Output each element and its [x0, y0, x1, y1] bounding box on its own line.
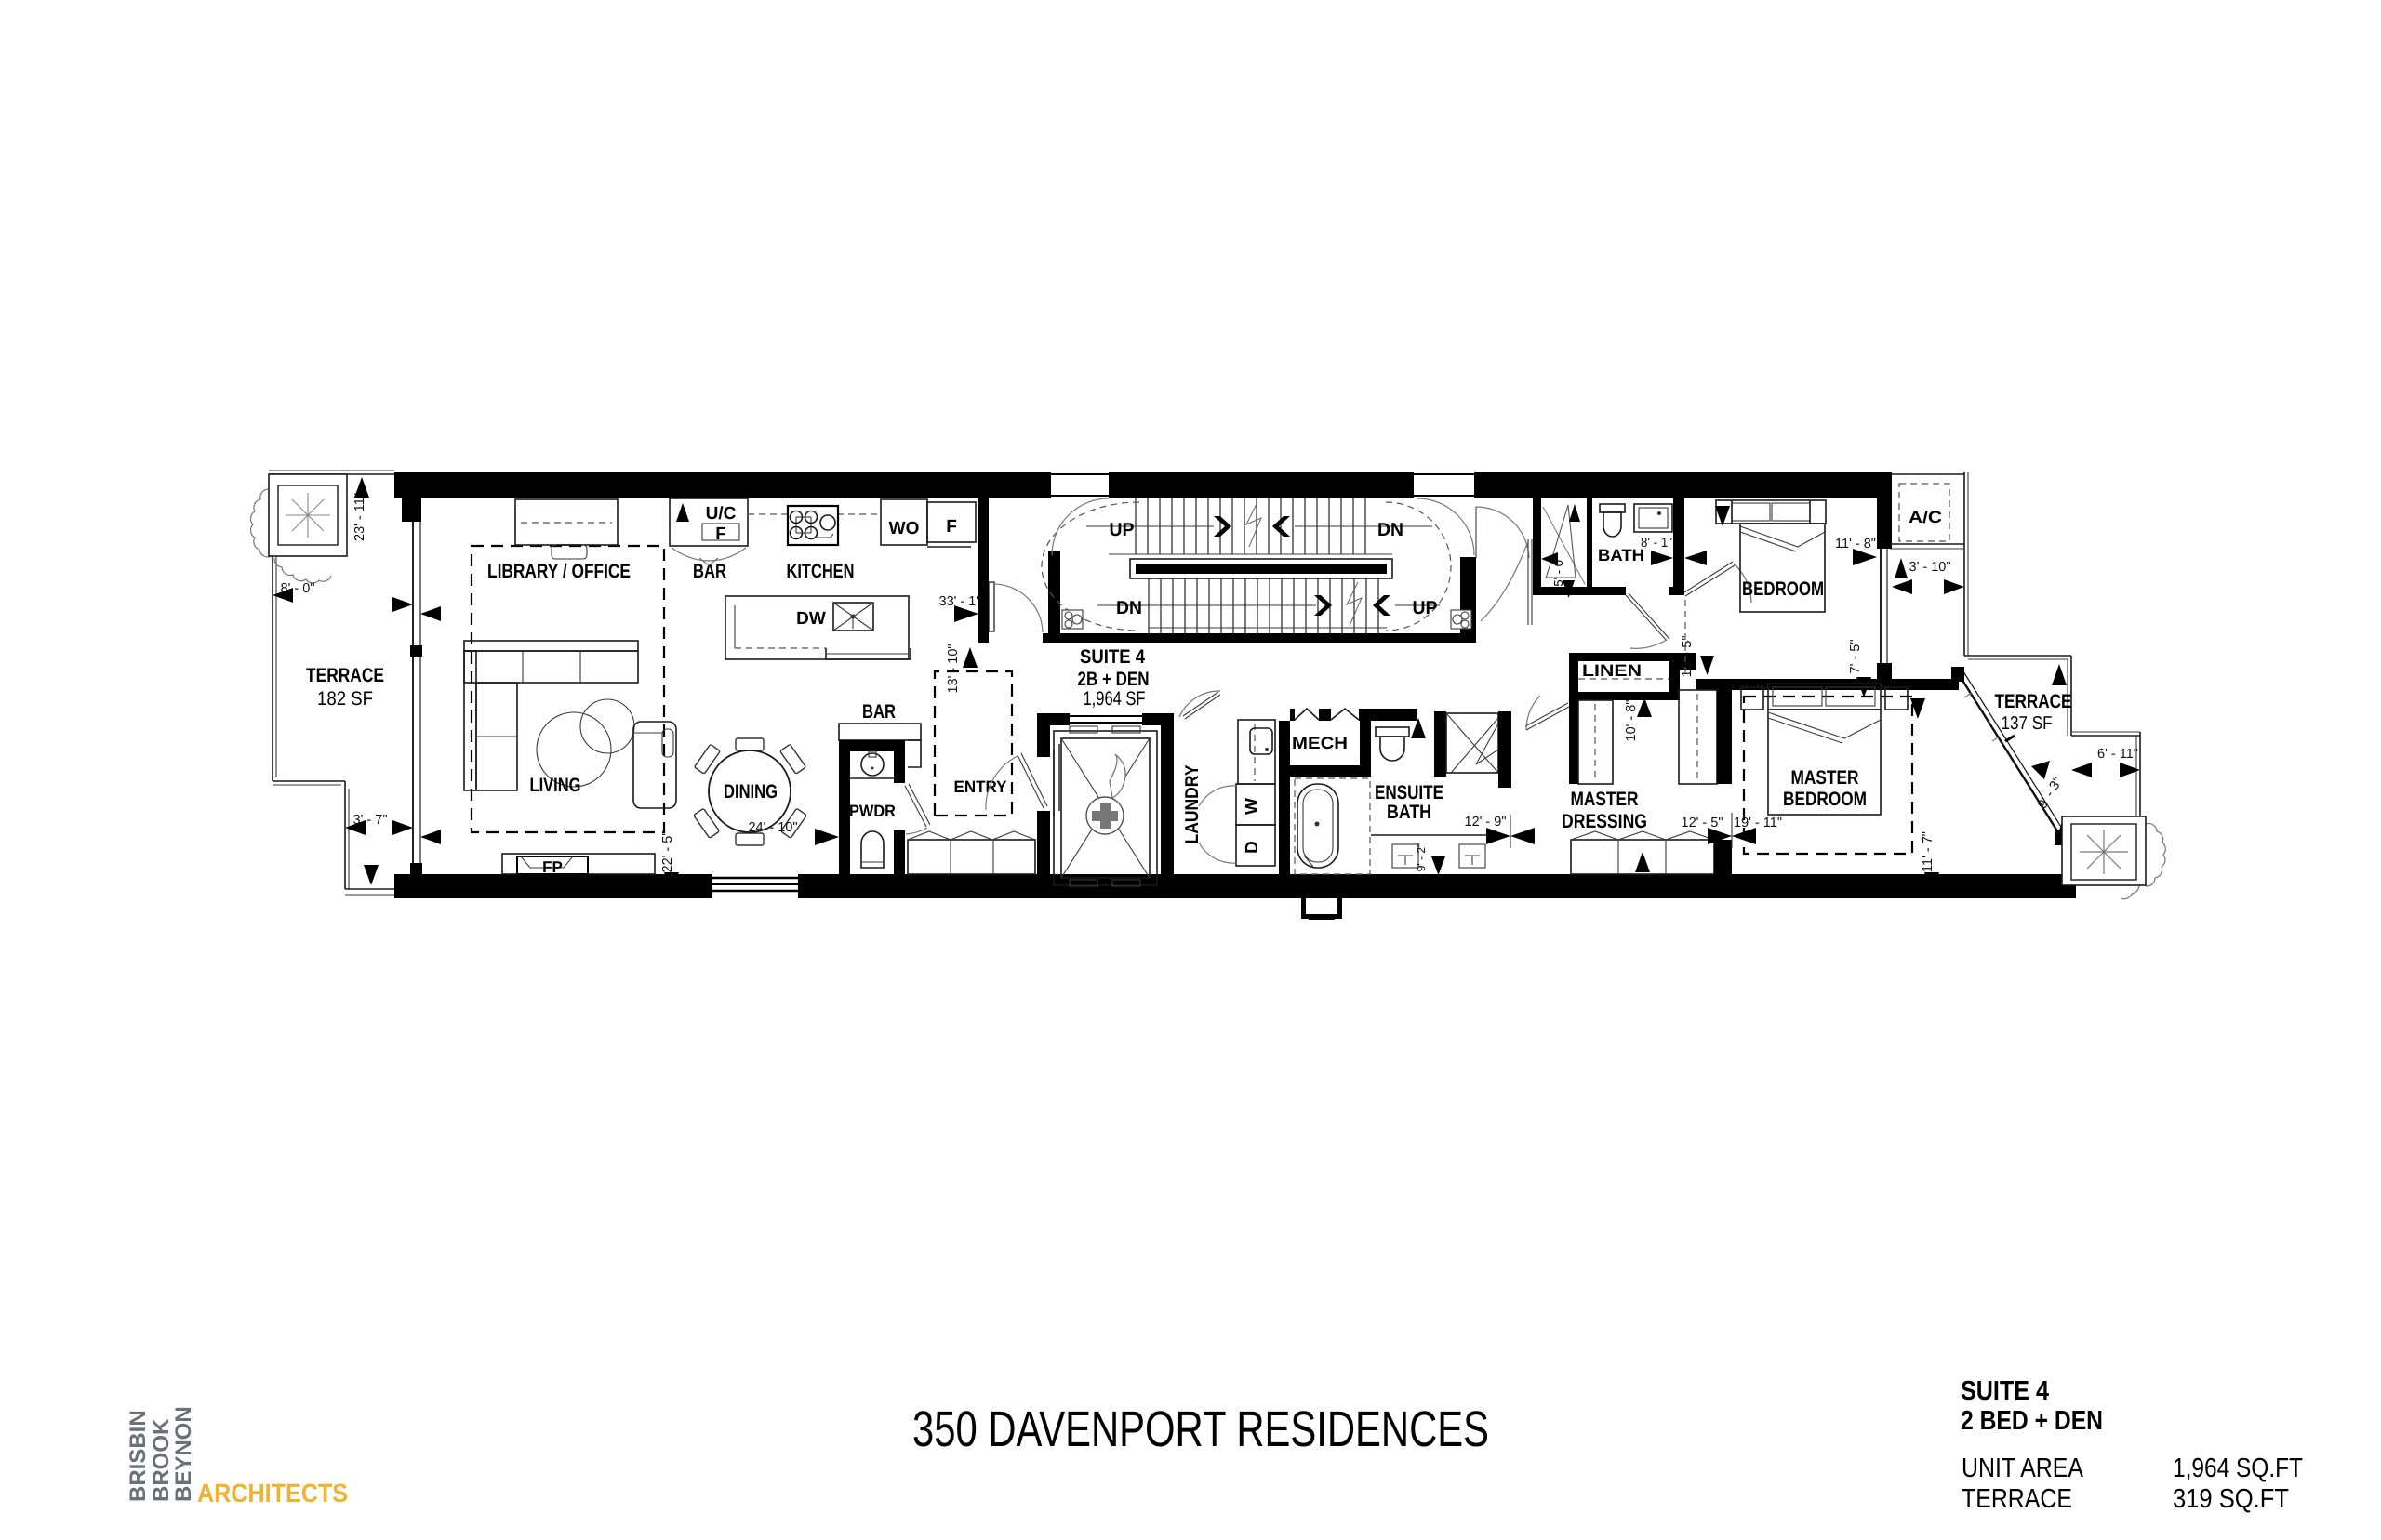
svg-text:LIVING: LIVING [530, 775, 581, 796]
svg-text:BATH: BATH [1598, 546, 1644, 564]
svg-text:SUITE 4: SUITE 4 [1961, 1376, 2049, 1406]
svg-text:LINEN: LINEN [1582, 661, 1642, 680]
svg-text:TERRACE: TERRACE [1995, 691, 2072, 712]
svg-text:BAR: BAR [862, 701, 896, 723]
svg-text:1,964 SQ.FT: 1,964 SQ.FT [2173, 1454, 2303, 1483]
svg-text:12' - 5": 12' - 5" [1682, 816, 1723, 830]
svg-text:9' - 2": 9' - 2" [1415, 843, 1428, 872]
svg-text:ENTRY: ENTRY [954, 777, 1007, 796]
svg-text:UNIT AREA: UNIT AREA [1962, 1454, 2084, 1483]
svg-text:350 DAVENPORT RESIDENCES: 350 DAVENPORT RESIDENCES [912, 1401, 1489, 1457]
svg-text:DINING: DINING [724, 781, 778, 803]
svg-text:TERRACE: TERRACE [306, 665, 384, 686]
svg-text:DRESSING: DRESSING [1562, 811, 1647, 832]
svg-text:ENSUITE: ENSUITE [1375, 782, 1443, 803]
svg-text:SUITE 4: SUITE 4 [1080, 646, 1145, 668]
svg-text:1,964 SF: 1,964 SF [1084, 688, 1146, 710]
svg-text:7' - 5": 7' - 5" [1848, 640, 1863, 674]
svg-text:BEYNON: BEYNON [171, 1406, 196, 1502]
svg-text:F: F [715, 524, 726, 544]
svg-text:FP: FP [542, 858, 563, 876]
svg-text:D: D [1243, 841, 1262, 854]
svg-text:24' - 10": 24' - 10" [748, 820, 797, 835]
svg-text:137 SF: 137 SF [2002, 713, 2053, 734]
svg-text:22' - 5": 22' - 5" [660, 831, 675, 873]
svg-text:3' - 10": 3' - 10" [1909, 560, 1951, 575]
svg-text:23' - 11": 23' - 11" [352, 493, 367, 541]
svg-text:LIBRARY / OFFICE: LIBRARY / OFFICE [487, 561, 631, 582]
svg-text:UP: UP [1110, 520, 1135, 540]
svg-text:11' - 7": 11' - 7" [1921, 831, 1935, 872]
svg-text:33' - 1": 33' - 1" [939, 594, 981, 609]
svg-text:2 BED + DEN: 2 BED + DEN [1961, 1406, 2103, 1436]
svg-text:BEDROOM: BEDROOM [1783, 789, 1867, 810]
svg-text:UP: UP [1413, 598, 1438, 618]
svg-text:10' - 8": 10' - 8" [1624, 700, 1639, 742]
svg-text:13' - 10": 13' - 10" [946, 644, 961, 693]
svg-text:WO: WO [889, 519, 920, 538]
svg-text:DW: DW [796, 609, 826, 629]
svg-text:W: W [1243, 798, 1262, 815]
svg-text:MECH: MECH [1292, 734, 1348, 752]
svg-text:19' - 11": 19' - 11" [1734, 816, 1782, 830]
svg-text:10' - 5": 10' - 5" [1680, 636, 1695, 678]
svg-text:6' - 11": 6' - 11" [2097, 747, 2138, 762]
svg-text:BATH: BATH [1387, 802, 1431, 823]
svg-text:182 SF: 182 SF [317, 688, 373, 710]
svg-text:KITCHEN: KITCHEN [787, 561, 855, 582]
svg-text:PWDR: PWDR [849, 802, 896, 820]
svg-text:DN: DN [1377, 520, 1403, 540]
svg-text:F: F [946, 517, 957, 537]
svg-text:11' - 8": 11' - 8" [1835, 537, 1876, 551]
svg-text:BEDROOM: BEDROOM [1742, 578, 1824, 600]
svg-text:2B + DEN: 2B + DEN [1078, 669, 1150, 690]
svg-text:A/C: A/C [1909, 508, 1942, 526]
svg-text:BRISBIN: BRISBIN [126, 1410, 151, 1502]
svg-text:MASTER: MASTER [1791, 767, 1859, 789]
svg-text:DN: DN [1116, 598, 1142, 618]
svg-text:BROOK: BROOK [149, 1418, 174, 1502]
svg-text:12' - 9": 12' - 9" [1465, 815, 1507, 830]
svg-text:319 SQ.FT: 319 SQ.FT [2173, 1484, 2289, 1514]
svg-text:ARCHITECTS: ARCHITECTS [197, 1479, 348, 1507]
svg-text:TERRACE: TERRACE [1962, 1484, 2072, 1514]
svg-text:8' - 1": 8' - 1" [1641, 536, 1672, 551]
svg-text:U/C: U/C [706, 504, 737, 524]
svg-text:MASTER: MASTER [1571, 789, 1639, 810]
